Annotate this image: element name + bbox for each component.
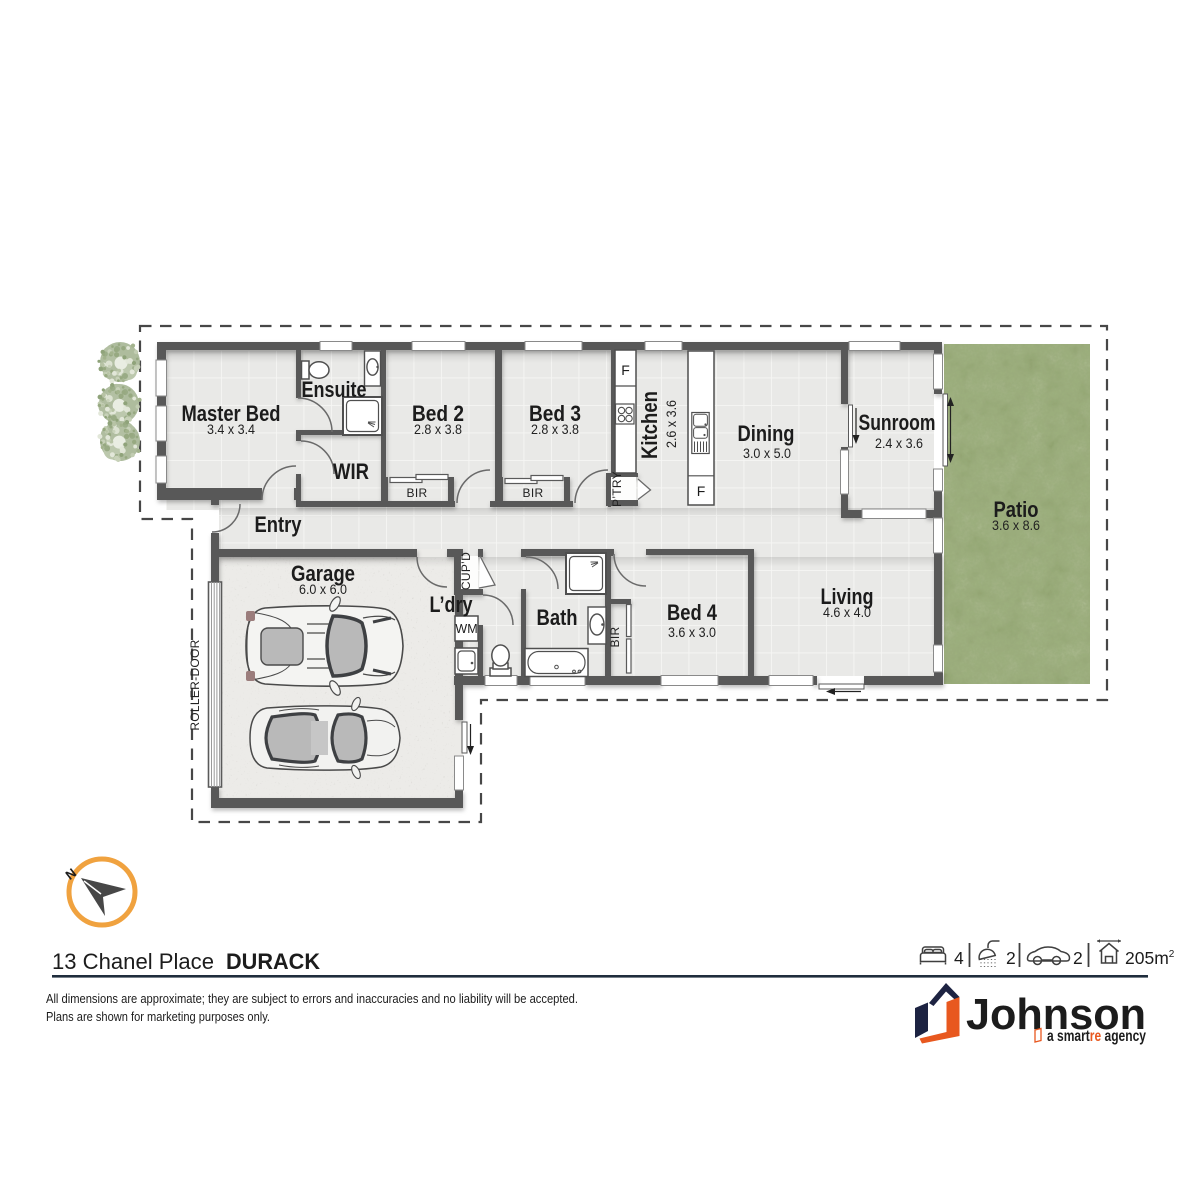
- svg-text:Ensuite: Ensuite: [302, 377, 367, 402]
- svg-text:6.0 x 6.0: 6.0 x 6.0: [299, 581, 347, 597]
- svg-text:4.6 x 4.0: 4.6 x 4.0: [823, 604, 871, 620]
- svg-text:L’dry: L’dry: [430, 592, 474, 617]
- svg-text:2: 2: [1073, 948, 1083, 968]
- svg-text:CUP’D: CUP’D: [459, 552, 473, 590]
- svg-text:Sunroom: Sunroom: [859, 410, 936, 435]
- svg-text:ROLLER-DOOR: ROLLER-DOOR: [188, 639, 202, 730]
- svg-text:WIR: WIR: [333, 459, 369, 484]
- svg-text:DURACK: DURACK: [226, 949, 320, 974]
- svg-text:2: 2: [1006, 948, 1016, 968]
- svg-text:BIR: BIR: [608, 627, 622, 648]
- svg-text:a smartre agency: a smartre agency: [1047, 1028, 1146, 1045]
- svg-text:2.8 x 3.8: 2.8 x 3.8: [414, 421, 462, 437]
- svg-text:Plans are shown for marketing: Plans are shown for marketing purposes o…: [46, 1009, 270, 1024]
- svg-text:Bed 4: Bed 4: [667, 600, 718, 625]
- svg-text:P’TRY: P’TRY: [610, 471, 624, 507]
- svg-text:2.6 x 3.6: 2.6 x 3.6: [663, 400, 679, 448]
- svg-text:WM: WM: [455, 622, 477, 636]
- svg-text:2.8 x 3.8: 2.8 x 3.8: [531, 421, 579, 437]
- svg-text:205m2: 205m2: [1125, 948, 1175, 968]
- svg-text:3.6 x 8.6: 3.6 x 8.6: [992, 517, 1040, 533]
- svg-text:F: F: [621, 362, 630, 378]
- svg-text:3.0 x 5.0: 3.0 x 5.0: [743, 445, 791, 461]
- svg-text:BIR: BIR: [407, 486, 428, 500]
- svg-text:13 Chanel Place: 13 Chanel Place: [52, 949, 214, 974]
- svg-text:All dimensions are approximate: All dimensions are approximate; they are…: [46, 991, 578, 1006]
- svg-text:BIR: BIR: [523, 486, 544, 500]
- svg-text:2.4 x 3.6: 2.4 x 3.6: [875, 435, 923, 451]
- svg-text:Dining: Dining: [738, 421, 795, 446]
- svg-text:4: 4: [954, 948, 964, 968]
- svg-text:Bath: Bath: [537, 605, 578, 630]
- svg-text:Kitchen: Kitchen: [637, 391, 662, 459]
- svg-text:3.4 x 3.4: 3.4 x 3.4: [207, 421, 255, 437]
- svg-text:Entry: Entry: [255, 512, 303, 537]
- svg-text:F: F: [697, 483, 706, 499]
- svg-text:3.6 x 3.0: 3.6 x 3.0: [668, 624, 716, 640]
